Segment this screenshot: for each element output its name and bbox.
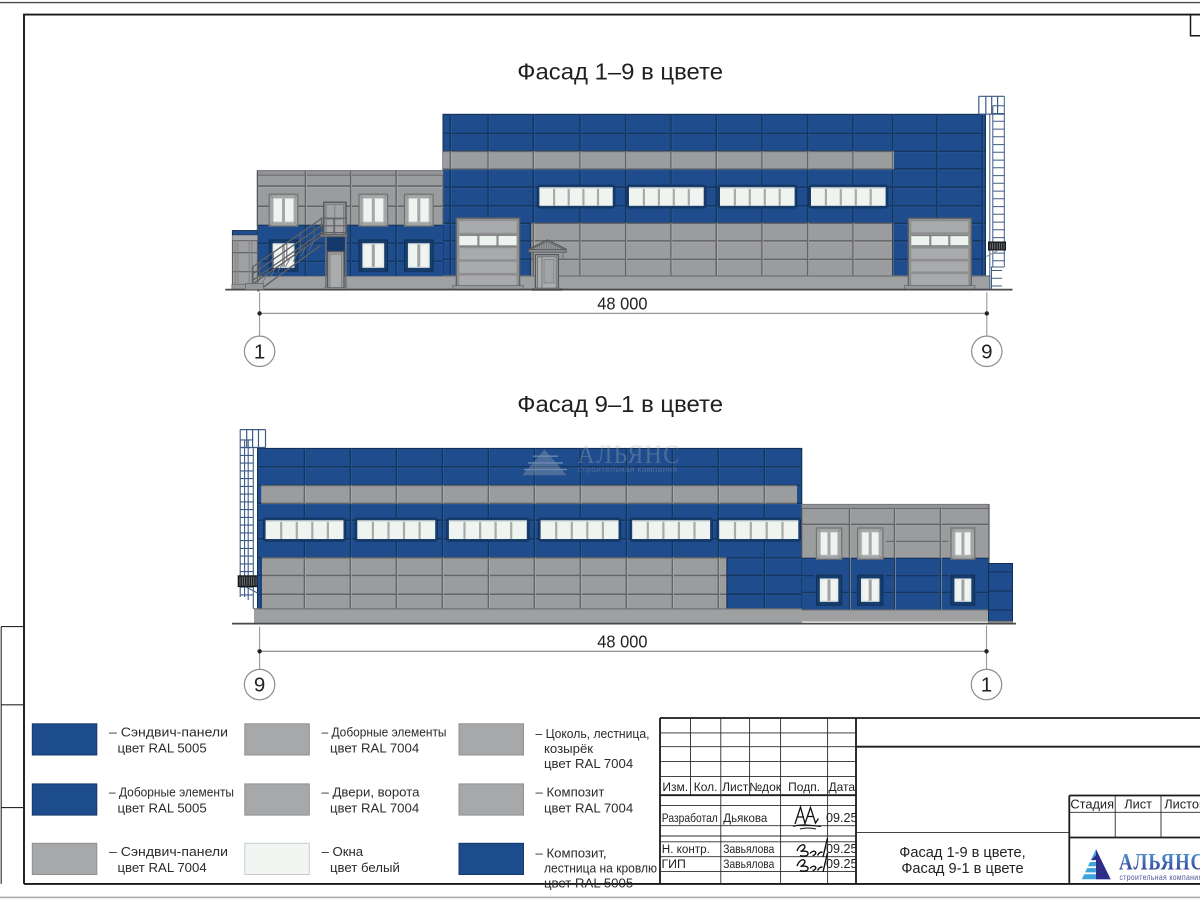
svg-text:Разработал: Разработал bbox=[662, 811, 718, 825]
svg-text:Дата: Дата bbox=[829, 780, 856, 794]
svg-text:Н. контр.: Н. контр. bbox=[662, 842, 710, 856]
svg-text:– Доборные элементы: – Доборные элементы bbox=[109, 784, 234, 799]
svg-text:09.25: 09.25 bbox=[826, 857, 858, 871]
svg-text:– Композит: – Композит bbox=[536, 784, 605, 799]
svg-text:– Доборные элементы: – Доборные элементы bbox=[322, 724, 447, 739]
svg-text:Фасад 9-1 в цвете: Фасад 9-1 в цвете bbox=[901, 861, 1023, 877]
svg-text:– Композит,: – Композит, bbox=[536, 846, 607, 861]
svg-text:Дьякова: Дьякова bbox=[723, 811, 767, 825]
svg-text:9: 9 bbox=[981, 340, 992, 363]
svg-text:1: 1 bbox=[981, 674, 992, 697]
svg-text:Подп.: Подп. bbox=[788, 780, 820, 794]
svg-text:Стадия: Стадия bbox=[1070, 797, 1114, 812]
svg-text:Фасад 9–1 в цвете: Фасад 9–1 в цвете bbox=[517, 391, 723, 417]
svg-text:цвет RAL 7004: цвет RAL 7004 bbox=[544, 800, 633, 815]
svg-text:Фасад 1-9 в цвете,: Фасад 1-9 в цвете, bbox=[899, 845, 1025, 861]
svg-text:цвет RAL 7004: цвет RAL 7004 bbox=[118, 860, 207, 875]
svg-text:№док: №док bbox=[749, 780, 782, 794]
svg-text:Завьялова: Завьялова bbox=[723, 842, 774, 856]
svg-text:1: 1 bbox=[254, 340, 265, 363]
svg-text:Листов: Листов bbox=[1164, 797, 1200, 812]
svg-text:Лист: Лист bbox=[722, 780, 749, 794]
svg-text:– Двери, ворота: – Двери, ворота bbox=[322, 784, 421, 799]
svg-text:9: 9 bbox=[254, 674, 265, 697]
svg-text:48 000: 48 000 bbox=[597, 294, 647, 314]
svg-text:строительная компания: строительная компания bbox=[1120, 872, 1200, 882]
svg-text:цвет RAL 5005: цвет RAL 5005 bbox=[118, 800, 207, 815]
svg-text:цвет RAL 7004: цвет RAL 7004 bbox=[544, 756, 633, 771]
svg-text:– Сэндвич-панели: – Сэндвич-панели bbox=[109, 844, 228, 859]
svg-text:Завьялова: Завьялова bbox=[723, 857, 774, 871]
svg-text:– Окна: – Окна bbox=[322, 844, 364, 859]
svg-text:– Сэндвич-панели: – Сэндвич-панели bbox=[109, 724, 228, 739]
svg-text:48 000: 48 000 bbox=[597, 632, 647, 652]
svg-text:цвет RAL 5005: цвет RAL 5005 bbox=[544, 876, 633, 891]
svg-text:строительная компания: строительная компания bbox=[578, 464, 678, 474]
svg-text:ГИП: ГИП bbox=[662, 857, 686, 871]
svg-text:– Цоколь, лестница,: – Цоколь, лестница, bbox=[536, 726, 650, 741]
svg-text:09.25: 09.25 bbox=[826, 811, 858, 825]
svg-text:Фасад 1–9 в цвете: Фасад 1–9 в цвете bbox=[517, 59, 723, 85]
svg-text:козырёк: козырёк bbox=[544, 741, 593, 756]
svg-text:Лист: Лист bbox=[1124, 797, 1152, 812]
svg-text:09.25: 09.25 bbox=[826, 842, 858, 856]
svg-text:цвет RAL 5005: цвет RAL 5005 bbox=[118, 740, 207, 755]
svg-text:цвет белый: цвет белый bbox=[330, 860, 400, 875]
svg-text:цвет RAL 7004: цвет RAL 7004 bbox=[330, 740, 419, 755]
svg-text:цвет RAL 7004: цвет RAL 7004 bbox=[330, 800, 419, 815]
svg-text:Кол.: Кол. bbox=[694, 780, 718, 794]
svg-text:Изм.: Изм. bbox=[662, 780, 688, 794]
svg-text:лестница на кровлю: лестница на кровлю bbox=[544, 861, 657, 876]
